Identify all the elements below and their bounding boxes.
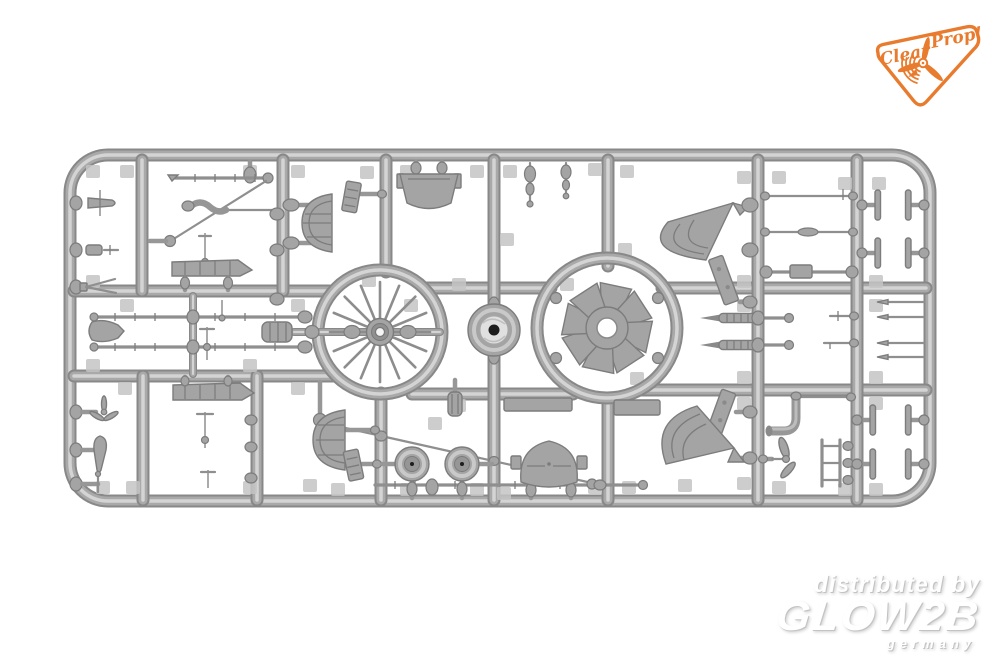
cowling-ring-disc [468, 297, 520, 364]
watermark-brand: GLOW2B [775, 598, 982, 636]
radial-fan [551, 277, 664, 379]
distributor-watermark: distributed by GLOW2B germany [788, 571, 980, 651]
machine-gun-barrels [700, 311, 859, 352]
clear-prop-logo: Clear Prop! [866, 20, 996, 116]
t-parts-bottom-right [852, 405, 929, 479]
canopy-dome [504, 398, 587, 498]
t-parts-top-right [857, 190, 929, 268]
needle-rods [877, 300, 924, 360]
cylinder-barrel [262, 322, 319, 342]
exhaust-pipe [766, 392, 856, 437]
sprue [0, 0, 1000, 667]
rod-parts-top-right [760, 189, 858, 278]
valve-pins [525, 163, 572, 207]
clear-prop-badge: Clear Prop! [866, 20, 996, 116]
product-photo: Clear Prop! distributed by GLOW2B german… [0, 0, 1000, 667]
small-struts-bottom-left [197, 412, 257, 488]
ladder-rack [822, 440, 853, 486]
half-moon-bulkhead-top [283, 194, 332, 252]
left-edge-small-parts-bottom [70, 396, 119, 492]
mini-propeller [89, 396, 119, 422]
wire-spoked-wheel [320, 282, 440, 382]
flat-plate [614, 400, 660, 415]
